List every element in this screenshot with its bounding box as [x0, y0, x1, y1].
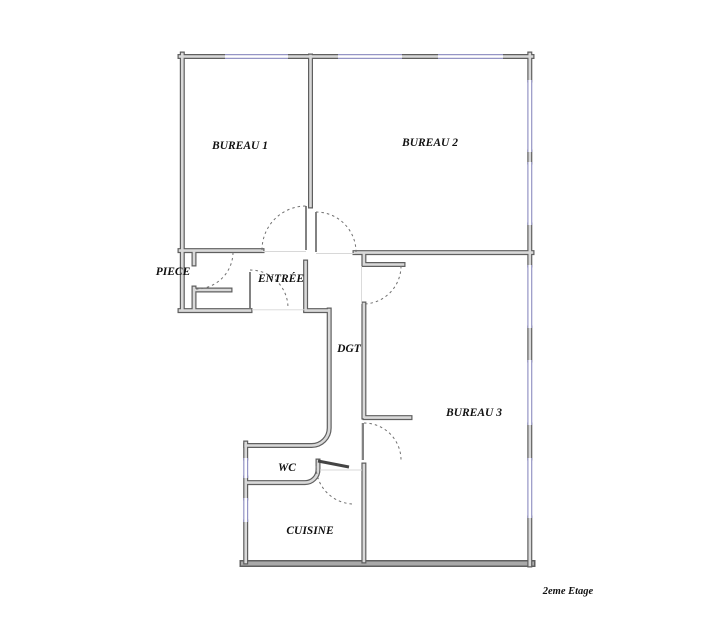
room-label-bureau-2: BUREAU 2	[401, 137, 458, 149]
wc-door-leaf	[318, 461, 349, 467]
degagement-door-arc	[364, 423, 401, 460]
bureau1-door-arc	[262, 206, 306, 250]
room-label-entree: ENTRÉE	[257, 271, 304, 285]
bureau2-door-arc	[316, 212, 356, 252]
bureau3-door-arc	[363, 266, 401, 304]
window-segments	[225, 57, 530, 523]
wall-segments-core	[180, 54, 532, 565]
room-label-dgt: DGT	[336, 343, 362, 355]
window-segments-core	[225, 57, 530, 523]
room-label-bureau-3: BUREAU 3	[445, 407, 502, 419]
floor-plan: BUREAU 1 BUREAU 2 PIECE ENTRÉE DGT BUREA…	[0, 0, 714, 620]
windows	[225, 57, 530, 523]
room-label-piece: PIECE	[156, 266, 191, 278]
wc-door-arc	[316, 466, 354, 504]
floor-plan-page: BUREAU 1 BUREAU 2 PIECE ENTRÉE DGT BUREA…	[0, 0, 714, 620]
floor-caption: 2eme Etage	[542, 586, 594, 597]
piece-door-arc	[196, 252, 233, 289]
room-label-cuisine: CUISINE	[286, 525, 334, 537]
walls	[180, 54, 532, 565]
room-label-bureau-1: BUREAU 1	[211, 140, 268, 152]
room-label-wc: WC	[278, 462, 296, 474]
